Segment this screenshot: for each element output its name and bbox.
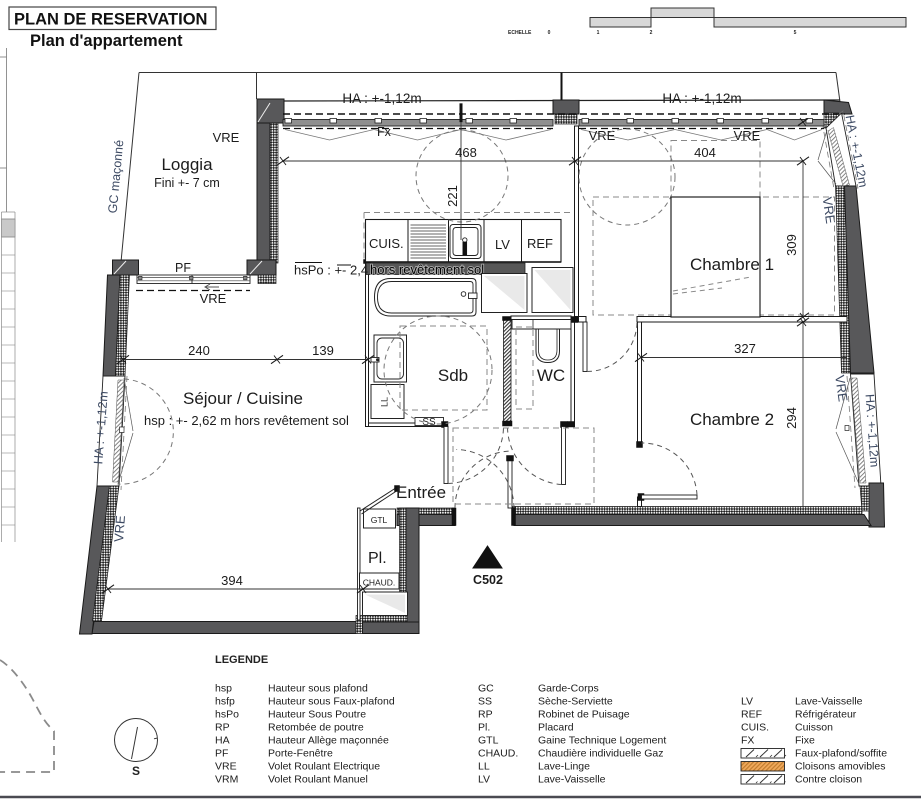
svg-text:Lave-Vaisselle: Lave-Vaisselle [795,696,863,708]
svg-text:Faux-plafond/soffite: Faux-plafond/soffite [795,748,887,760]
svg-text:GTL: GTL [371,515,388,525]
svg-text:240: 240 [188,343,210,358]
svg-text:HA : +-1,12m: HA : +-1,12m [662,91,741,106]
svg-text:Séjour / Cuisine: Séjour / Cuisine [183,389,303,408]
svg-text:309: 309 [784,234,799,256]
svg-text:CUIS.: CUIS. [369,236,404,251]
svg-text:LV: LV [495,237,510,252]
svg-text:WC: WC [537,366,565,385]
svg-text:1: 1 [597,30,600,36]
svg-text:LL: LL [380,397,390,407]
svg-text:Lave-Linge: Lave-Linge [538,761,590,773]
svg-text:Pl.: Pl. [368,550,387,567]
svg-text:Robinet de Puisage: Robinet de Puisage [538,709,630,721]
svg-text:GTL: GTL [478,735,499,747]
svg-text:Fx: Fx [377,125,392,139]
svg-text:CUIS.: CUIS. [741,722,769,734]
svg-text:221: 221 [445,185,460,207]
svg-text:SS: SS [422,417,436,428]
svg-text:Hauteur sous plafond: Hauteur sous plafond [268,683,368,695]
svg-text:hsPo: hsPo [215,709,239,721]
svg-text:Porte-Fenêtre: Porte-Fenêtre [268,748,333,760]
svg-text:139: 139 [312,343,334,358]
svg-text:Garde-Corps: Garde-Corps [538,683,599,695]
svg-text:Retombée de poutre: Retombée de poutre [268,722,364,734]
svg-text:LV: LV [741,696,753,708]
svg-text:327: 327 [734,341,756,356]
svg-text:hsPo : +- 2,4: hsPo : +- 2,4 [294,263,368,278]
svg-text:SS: SS [478,696,492,708]
svg-text:C502: C502 [473,573,503,587]
svg-text:Sèche-Serviette: Sèche-Serviette [538,696,613,708]
svg-text:VRE: VRE [215,761,237,773]
svg-text:Entrée: Entrée [396,483,446,502]
svg-text:Plan d'appartement: Plan d'appartement [30,32,183,50]
svg-text:Contre cloison: Contre cloison [795,774,862,786]
svg-text:Gaine Technique Logement: Gaine Technique Logement [538,735,666,747]
svg-text:Hauteur Sous Poutre: Hauteur Sous Poutre [268,709,366,721]
svg-text:VRM: VRM [215,774,238,786]
svg-text:Chambre 1: Chambre 1 [690,255,774,274]
svg-text:S: S [132,764,140,778]
svg-text:0: 0 [548,30,551,36]
svg-text:Hauteur sous Faux-plafond: Hauteur sous Faux-plafond [268,696,395,708]
svg-text:FX: FX [741,735,754,747]
svg-text:hsp: hsp [215,683,232,695]
svg-text:LL: LL [478,761,490,773]
svg-text:Réfrigérateur: Réfrigérateur [795,709,857,721]
svg-text:LEGENDE: LEGENDE [215,654,268,666]
svg-text:VRE: VRE [111,514,128,542]
svg-text:HA: HA [215,735,230,747]
svg-text:GC: GC [478,683,494,695]
svg-text:PF: PF [175,261,191,275]
svg-text:Hauteur Allège maçonnée: Hauteur Allège maçonnée [268,735,389,747]
svg-text:RP: RP [478,709,493,721]
svg-text:2: 2 [650,30,653,36]
svg-text:Lave-Vaisselle: Lave-Vaisselle [538,774,606,786]
svg-text:VRE: VRE [213,130,240,145]
svg-text:Fixe: Fixe [795,735,815,747]
svg-text:PF: PF [215,748,228,760]
svg-text:Pl.: Pl. [478,722,490,734]
svg-text:REF: REF [527,236,553,251]
svg-text:PLAN DE RESERVATION: PLAN DE RESERVATION [14,11,207,29]
svg-text:294: 294 [784,407,799,429]
svg-text:Placard: Placard [538,722,574,734]
svg-text:404: 404 [694,145,716,160]
svg-text:ECHELLE: ECHELLE [508,30,532,36]
svg-text:5: 5 [794,30,797,36]
svg-text:Volet Roulant Manuel: Volet Roulant Manuel [268,774,368,786]
svg-text:Cuisson: Cuisson [795,722,833,734]
svg-text:Sdb: Sdb [438,366,468,385]
svg-text:Volet Roulant Electrique: Volet Roulant Electrique [268,761,380,773]
svg-text:hors revêtement sol: hors revêtement sol [370,262,484,277]
svg-text:hsp : +- 2,62 m hors revêtemen: hsp : +- 2,62 m hors revêtement sol [144,413,349,428]
svg-text:468: 468 [455,145,477,160]
svg-text:REF: REF [741,709,762,721]
svg-text:Chambre 2: Chambre 2 [690,410,774,429]
svg-text:Loggia: Loggia [161,155,213,174]
svg-text:Fini +- 7 cm: Fini +- 7 cm [154,176,220,190]
svg-text:RP: RP [215,722,230,734]
svg-text:LV: LV [478,774,490,786]
svg-text:VRE: VRE [200,291,227,306]
svg-text:Cloisons amovibles: Cloisons amovibles [795,761,885,773]
svg-text:Chaudière individuelle Gaz: Chaudière individuelle Gaz [538,748,664,760]
svg-text:HA : +-1,12m: HA : +-1,12m [342,91,421,106]
svg-text:hsfp: hsfp [215,696,235,708]
svg-text:394: 394 [221,573,243,588]
svg-text:CHAUD.: CHAUD. [478,748,518,760]
